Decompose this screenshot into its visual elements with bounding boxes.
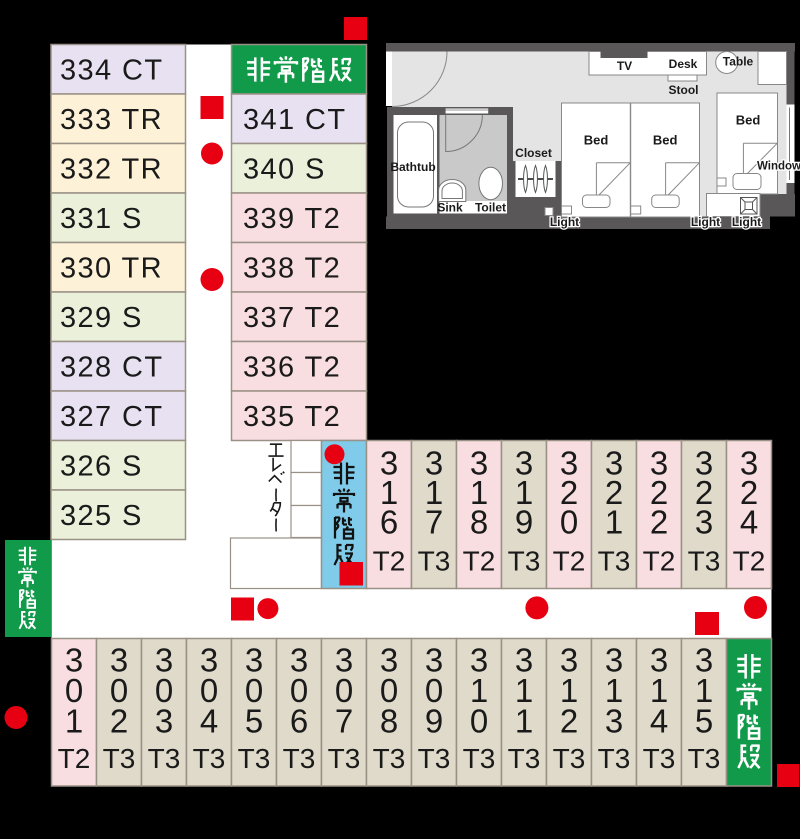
svg-text:6: 6 — [290, 703, 308, 740]
svg-text:328 CT: 328 CT — [60, 351, 164, 383]
svg-text:0: 0 — [470, 703, 488, 740]
svg-text:335 T2: 335 T2 — [243, 401, 341, 433]
svg-text:T3: T3 — [553, 743, 586, 774]
svg-text:4: 4 — [650, 703, 668, 740]
svg-text:7: 7 — [335, 703, 353, 740]
svg-text:T3: T3 — [463, 743, 496, 774]
svg-text:337 T2: 337 T2 — [243, 302, 341, 334]
svg-text:Toilet: Toilet — [475, 201, 506, 215]
svg-text:T3: T3 — [328, 743, 361, 774]
svg-text:329 S: 329 S — [60, 302, 143, 334]
svg-text:T2: T2 — [373, 546, 406, 577]
svg-text:339 T2: 339 T2 — [243, 203, 341, 235]
svg-text:Table: Table — [723, 55, 754, 69]
svg-text:T2: T2 — [643, 546, 676, 577]
svg-text:Bed: Bed — [736, 113, 761, 128]
svg-text:334 CT: 334 CT — [60, 54, 164, 86]
svg-text:6: 6 — [380, 504, 398, 541]
svg-text:T3: T3 — [508, 743, 541, 774]
svg-text:Bed: Bed — [584, 133, 609, 148]
svg-text:333 TR: 333 TR — [60, 104, 163, 136]
svg-text:2: 2 — [110, 703, 128, 740]
svg-text:T2: T2 — [463, 546, 496, 577]
svg-text:T3: T3 — [373, 743, 406, 774]
svg-text:Closet: Closet — [515, 146, 552, 160]
svg-text:340 S: 340 S — [243, 153, 326, 185]
svg-text:T3: T3 — [508, 546, 541, 577]
svg-text:Bed: Bed — [653, 133, 678, 148]
svg-text:330 TR: 330 TR — [60, 252, 163, 284]
svg-text:9: 9 — [425, 703, 443, 740]
svg-text:4: 4 — [740, 504, 758, 541]
svg-text:T3: T3 — [418, 546, 451, 577]
svg-text:T3: T3 — [688, 743, 721, 774]
svg-text:2: 2 — [560, 703, 578, 740]
svg-text:Light: Light — [732, 215, 761, 229]
svg-text:7: 7 — [425, 504, 443, 541]
svg-text:Light: Light — [550, 215, 579, 229]
svg-text:0: 0 — [560, 504, 578, 541]
svg-text:8: 8 — [380, 703, 398, 740]
svg-text:3: 3 — [605, 703, 623, 740]
svg-text:338 T2: 338 T2 — [243, 252, 341, 284]
svg-text:T2: T2 — [58, 743, 91, 774]
svg-text:T3: T3 — [283, 743, 316, 774]
svg-text:3: 3 — [155, 703, 173, 740]
svg-text:325 S: 325 S — [60, 500, 143, 532]
svg-text:T3: T3 — [418, 743, 451, 774]
svg-text:Light: Light — [691, 215, 720, 229]
svg-text:T2: T2 — [733, 546, 766, 577]
svg-text:2: 2 — [650, 504, 668, 541]
svg-text:Window: Window — [757, 161, 800, 173]
svg-text:Stool: Stool — [669, 83, 699, 97]
svg-text:331 S: 331 S — [60, 203, 143, 235]
svg-text:9: 9 — [515, 504, 533, 541]
svg-text:1: 1 — [65, 703, 83, 740]
svg-text:T3: T3 — [238, 743, 271, 774]
svg-text:332 TR: 332 TR — [60, 153, 163, 185]
svg-text:T3: T3 — [148, 743, 181, 774]
svg-text:T2: T2 — [553, 546, 586, 577]
svg-text:327 CT: 327 CT — [60, 401, 164, 433]
svg-text:T3: T3 — [193, 743, 226, 774]
svg-text:Bathtub: Bathtub — [390, 160, 435, 174]
svg-text:5: 5 — [695, 703, 713, 740]
svg-text:Sink: Sink — [437, 201, 463, 215]
svg-text:T3: T3 — [643, 743, 676, 774]
svg-text:336 T2: 336 T2 — [243, 351, 341, 383]
svg-text:3: 3 — [695, 504, 713, 541]
svg-text:Desk: Desk — [669, 57, 698, 71]
svg-text:1: 1 — [515, 703, 533, 740]
svg-text:8: 8 — [470, 504, 488, 541]
svg-text:TV: TV — [617, 59, 632, 73]
svg-text:T3: T3 — [598, 546, 631, 577]
svg-text:T3: T3 — [688, 546, 721, 577]
svg-text:341 CT: 341 CT — [243, 104, 347, 136]
svg-text:326 S: 326 S — [60, 450, 143, 482]
svg-text:5: 5 — [245, 703, 263, 740]
svg-text:T3: T3 — [103, 743, 136, 774]
svg-text:1: 1 — [605, 504, 623, 541]
svg-text:T3: T3 — [598, 743, 631, 774]
svg-text:4: 4 — [200, 703, 218, 740]
